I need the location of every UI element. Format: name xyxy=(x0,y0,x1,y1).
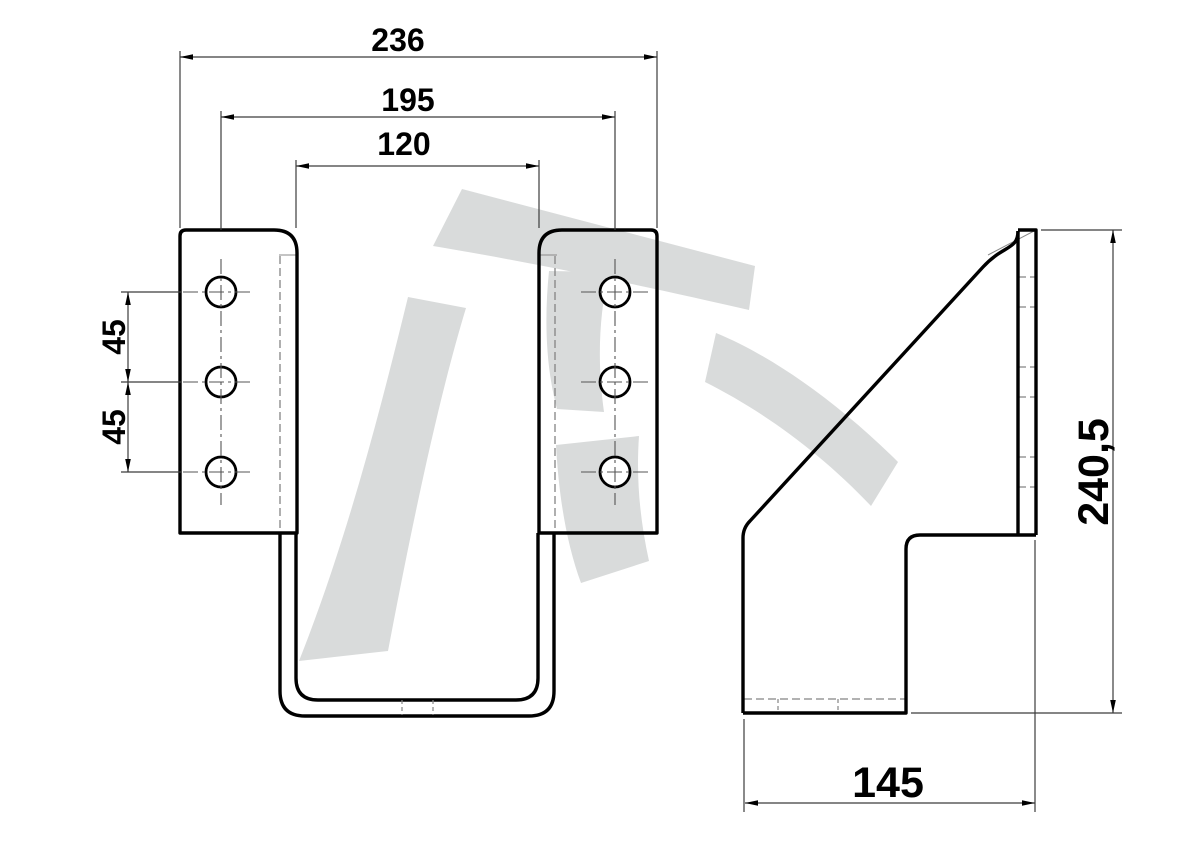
bracket-technical-drawing: 236 195 120 45 45 xyxy=(0,0,1200,848)
watermark-middle-lower-band xyxy=(556,436,649,583)
dim-240-arrow-bottom xyxy=(1110,700,1116,713)
dim-236-arrow-right xyxy=(644,54,657,60)
side-bend-tangent xyxy=(988,231,1034,255)
dim-195-arrow-right xyxy=(602,114,615,120)
dim-45-arrow-bottom xyxy=(125,459,131,472)
dim-120-label: 120 xyxy=(377,126,430,162)
dim-45-arrow-top xyxy=(125,292,131,305)
dim-45-upper-label: 45 xyxy=(96,319,132,355)
dim-145-label: 145 xyxy=(852,759,924,807)
dim-240-label: 240,5 xyxy=(1070,418,1118,526)
dim-145-arrow-left xyxy=(745,800,758,806)
side-hidden-hole-lines xyxy=(1018,277,1036,487)
dim-195-arrow-left xyxy=(221,114,234,120)
dim-45-lower-label: 45 xyxy=(96,409,132,445)
side-bottom-step-outline xyxy=(743,535,1036,713)
watermark-left-swoosh xyxy=(299,297,466,661)
dimension-145: 145 xyxy=(744,540,1035,812)
logo-watermark xyxy=(299,189,898,661)
dimension-236: 236 xyxy=(180,22,657,228)
dim-45-arrow-mid-upper xyxy=(125,369,131,382)
dim-145-arrow-right xyxy=(1022,800,1035,806)
technical-drawing-page: 236 195 120 45 45 xyxy=(0,0,1200,848)
dim-236-arrow-left xyxy=(180,54,193,60)
watermark-right-swoosh xyxy=(705,333,898,506)
dim-120-arrow-right xyxy=(526,163,539,169)
dim-236-label: 236 xyxy=(371,22,424,58)
side-plate-outline xyxy=(1018,230,1036,535)
dim-120-arrow-left xyxy=(296,163,309,169)
dim-195-label: 195 xyxy=(381,82,434,118)
dim-45-arrow-mid-lower xyxy=(125,382,131,395)
dimension-45-pair: 45 45 xyxy=(96,292,181,472)
dim-240-arrow-top xyxy=(1110,230,1116,243)
